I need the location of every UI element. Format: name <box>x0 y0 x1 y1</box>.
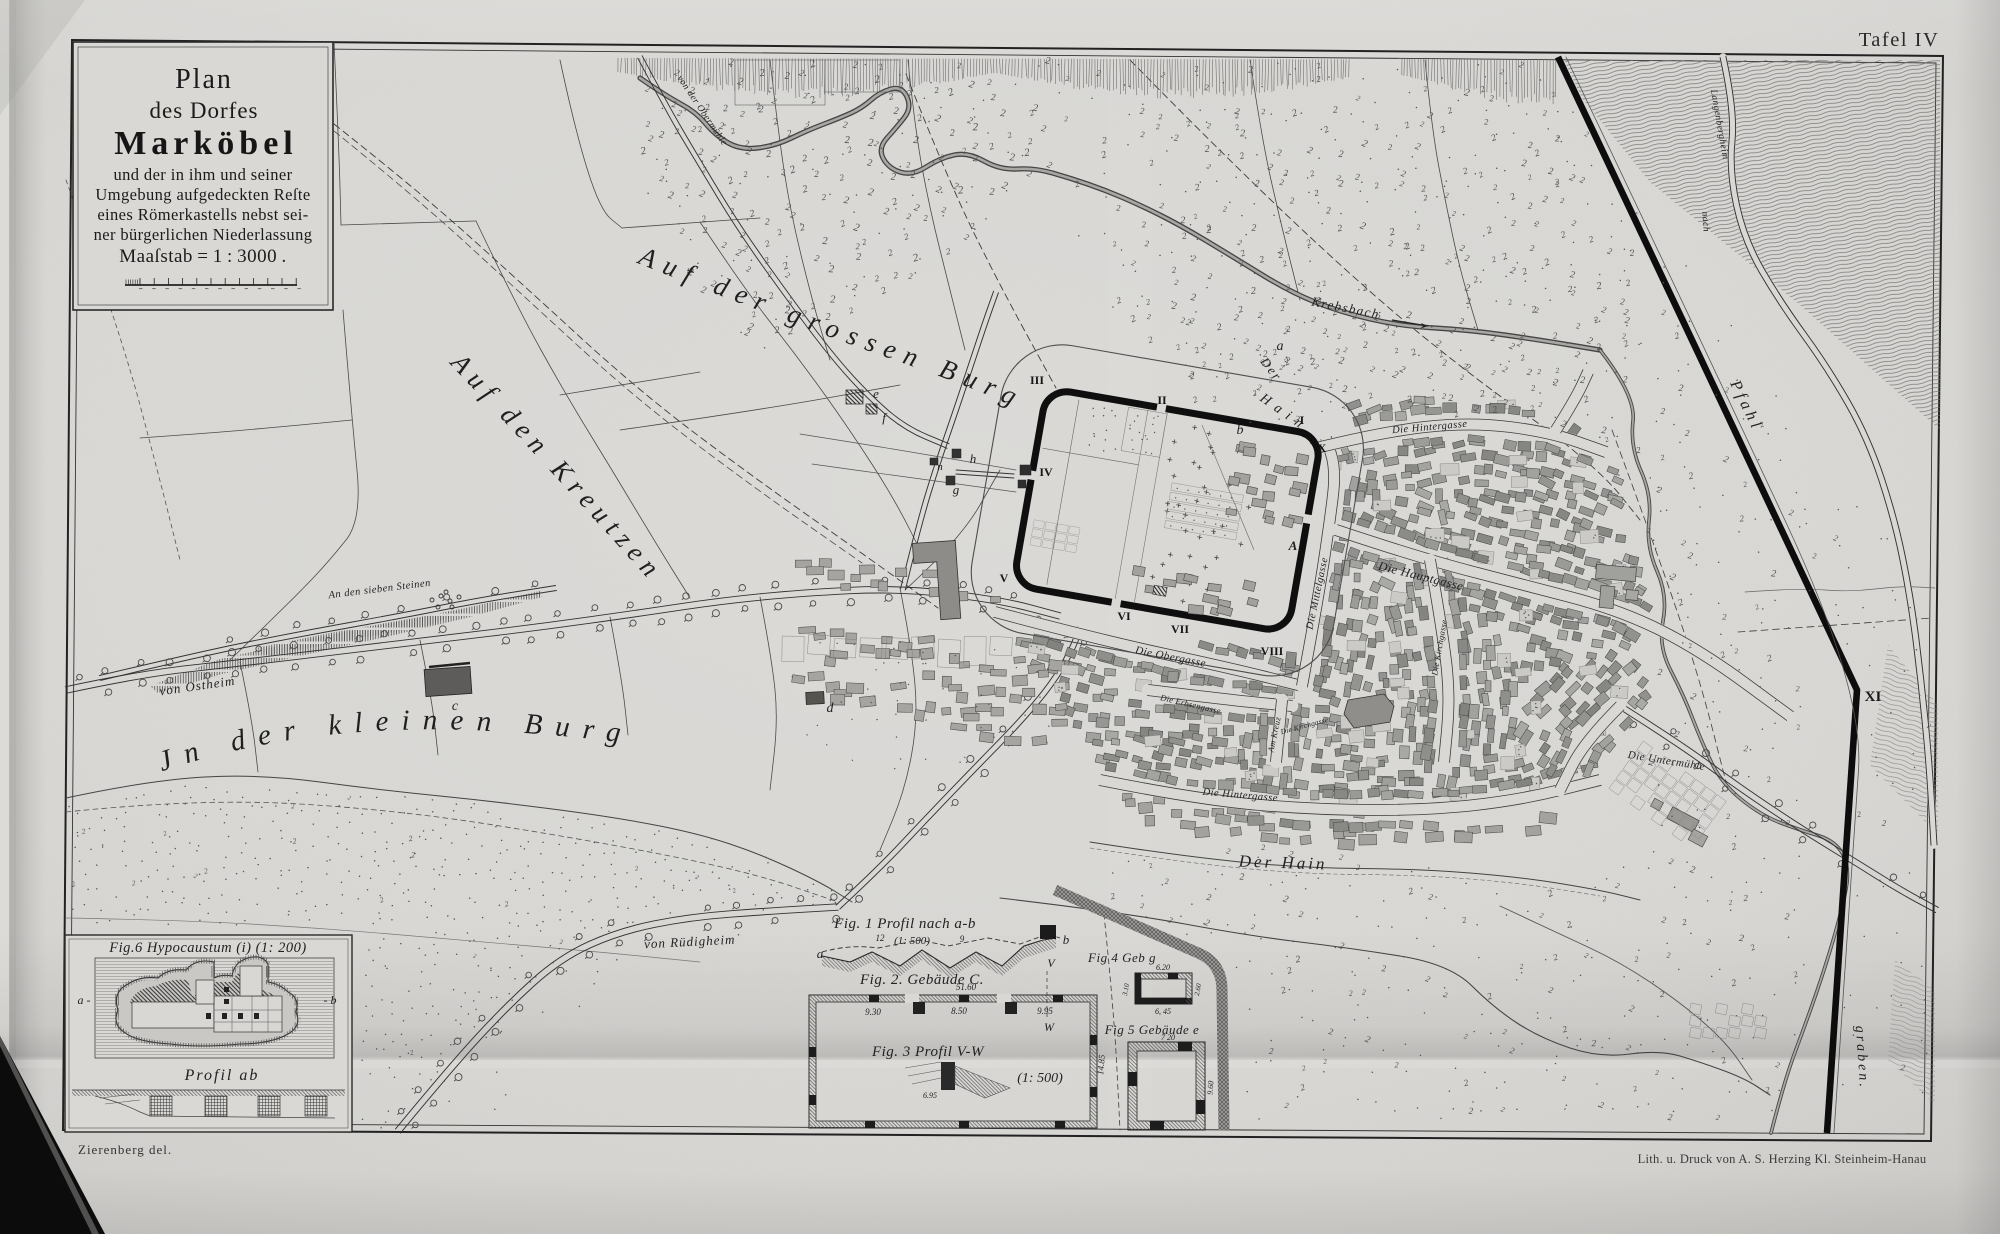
svg-text:2: 2 <box>1726 812 1730 821</box>
svg-text:2: 2 <box>1489 93 1494 103</box>
svg-text:2: 2 <box>1531 384 1536 393</box>
svg-text:2: 2 <box>856 252 861 263</box>
svg-text:2: 2 <box>1338 178 1344 189</box>
svg-text:2: 2 <box>685 181 689 190</box>
svg-text:2: 2 <box>1537 367 1541 376</box>
svg-text:6.95: 6.95 <box>923 1091 937 1100</box>
svg-text:2: 2 <box>803 91 808 100</box>
svg-text:2: 2 <box>1342 384 1348 395</box>
svg-text:2: 2 <box>1251 223 1256 234</box>
svg-text:2: 2 <box>1248 64 1254 75</box>
svg-text:2: 2 <box>1504 398 1508 407</box>
svg-text:Tafel IV: Tafel IV <box>1859 29 1940 51</box>
svg-text:Profil ab: Profil ab <box>184 1067 260 1084</box>
svg-text:Fig 4 Geb g: Fig 4 Geb g <box>1087 950 1156 965</box>
svg-text:2: 2 <box>1239 872 1245 883</box>
svg-text:b: b <box>1237 423 1244 438</box>
svg-text:n: n <box>937 461 943 473</box>
svg-text:2: 2 <box>1326 206 1331 216</box>
svg-text:6, 45: 6, 45 <box>1155 1007 1171 1016</box>
svg-text:12: 12 <box>876 933 886 943</box>
svg-text:2: 2 <box>957 61 961 70</box>
svg-text:2: 2 <box>723 103 729 114</box>
svg-text:9.95: 9.95 <box>1037 1006 1053 1016</box>
svg-text:2: 2 <box>1333 104 1339 115</box>
svg-text:2: 2 <box>1261 843 1265 852</box>
svg-text:W: W <box>1044 1020 1055 1034</box>
svg-text:2: 2 <box>989 187 994 198</box>
svg-text:2: 2 <box>1623 374 1628 385</box>
svg-text:2: 2 <box>703 225 708 235</box>
svg-text:und der in ihm und seiner: und der in ihm und seiner <box>113 165 292 184</box>
svg-text:2: 2 <box>822 235 828 247</box>
svg-text:2: 2 <box>1543 108 1547 117</box>
svg-text:Fig 5 Gebäude e: Fig 5 Gebäude e <box>1104 1022 1200 1037</box>
svg-text:XI: XI <box>1865 689 1882 705</box>
svg-text:nach: nach <box>1699 211 1711 232</box>
svg-text:2: 2 <box>906 160 910 169</box>
svg-text:VIII: VIII <box>1261 644 1284 658</box>
svg-text:g: g <box>953 482 960 497</box>
svg-text:2: 2 <box>814 170 819 180</box>
svg-text:Plan: Plan <box>175 64 233 95</box>
svg-text:2: 2 <box>1180 215 1185 226</box>
svg-text:2: 2 <box>972 121 978 133</box>
svg-text:a: a <box>1277 339 1284 354</box>
svg-text:2: 2 <box>1466 296 1471 306</box>
svg-text:9.30: 9.30 <box>865 1007 881 1017</box>
svg-text:7 20: 7 20 <box>1161 1033 1175 1042</box>
svg-text:2: 2 <box>1493 183 1498 192</box>
svg-text:e: e <box>873 386 879 401</box>
svg-text:2: 2 <box>1362 988 1366 997</box>
svg-text:II: II <box>1157 393 1167 407</box>
svg-text:2: 2 <box>1261 107 1265 116</box>
svg-text:2: 2 <box>1323 327 1328 336</box>
svg-text:Fig.6 Hypocaustum (i) (1: 200): Fig.6 Hypocaustum (i) (1: 200) <box>108 940 306 956</box>
svg-text:2: 2 <box>1140 130 1145 139</box>
svg-text:des Dorfes: des Dorfes <box>150 98 259 123</box>
svg-text:IV: IV <box>1039 465 1053 479</box>
svg-text:2: 2 <box>784 71 790 82</box>
svg-text:ner bürgerlichen Niederlassung: ner bürgerlichen Niederlassung <box>94 225 313 244</box>
svg-text:2: 2 <box>767 270 772 279</box>
svg-text:2: 2 <box>972 153 978 164</box>
svg-text:VII: VII <box>1171 622 1189 636</box>
svg-text:Der Hain: Der Hain <box>1238 851 1328 873</box>
svg-text:2: 2 <box>1442 392 1446 401</box>
svg-text:h: h <box>970 451 977 466</box>
svg-text:eines Römerkastells nebst sei-: eines Römerkastells nebst sei- <box>97 205 308 224</box>
svg-text:2: 2 <box>1204 144 1210 155</box>
svg-text:2: 2 <box>1165 877 1169 886</box>
svg-text:V: V <box>1000 571 1009 585</box>
svg-text:VI: VI <box>1117 609 1131 623</box>
svg-text:6.20: 6.20 <box>1156 963 1170 972</box>
svg-text:2: 2 <box>765 218 770 228</box>
svg-text:2: 2 <box>1223 204 1228 213</box>
svg-text:2: 2 <box>910 170 916 181</box>
svg-text:2: 2 <box>1349 989 1353 998</box>
svg-text:2: 2 <box>1158 112 1162 121</box>
svg-text:2: 2 <box>1722 612 1727 622</box>
svg-text:9.60: 9.60 <box>1205 1080 1215 1095</box>
svg-text:X: X <box>1318 441 1327 455</box>
svg-text:2: 2 <box>1771 568 1777 579</box>
svg-text:2: 2 <box>1468 1106 1473 1116</box>
svg-text:Maaſstab = 1 : 3000 .: Maaſstab = 1 : 3000 . <box>119 246 286 267</box>
svg-text:Lith. u. Druck von A. S. Herzi: Lith. u. Druck von A. S. Herzing Kl. Ste… <box>1638 1152 1927 1166</box>
svg-text:Fig. 3 Profil V-W: Fig. 3 Profil V-W <box>871 1044 985 1060</box>
svg-text:8.50: 8.50 <box>951 1006 967 1016</box>
svg-text:51.60: 51.60 <box>956 982 977 992</box>
svg-text:14.85: 14.85 <box>1095 1054 1107 1076</box>
svg-text:Fig. 1 Profil nach a-b: Fig. 1 Profil nach a-b <box>833 916 976 932</box>
svg-text:2: 2 <box>1388 143 1393 152</box>
svg-text:2: 2 <box>1240 128 1245 139</box>
svg-text:2: 2 <box>990 92 996 103</box>
svg-text:2: 2 <box>1254 178 1260 189</box>
svg-text:b: b <box>1063 932 1070 947</box>
svg-text:2: 2 <box>950 128 955 139</box>
svg-text:d: d <box>827 701 835 716</box>
svg-text:2: 2 <box>1591 1039 1596 1049</box>
svg-text:2: 2 <box>1448 393 1453 404</box>
svg-text:2: 2 <box>1796 684 1800 693</box>
svg-text:- b: - b <box>324 993 337 1007</box>
svg-text:2: 2 <box>1492 390 1497 399</box>
svg-text:Marköbel: Marköbel <box>114 125 298 162</box>
svg-text:2: 2 <box>1555 134 1561 144</box>
svg-text:2: 2 <box>1442 358 1447 368</box>
svg-text:2: 2 <box>1394 1060 1398 1069</box>
svg-text:III: III <box>1030 373 1044 387</box>
svg-text:2: 2 <box>674 126 679 136</box>
svg-text:2: 2 <box>1156 122 1160 131</box>
svg-text:2: 2 <box>1484 117 1489 127</box>
svg-text:2: 2 <box>1278 250 1283 260</box>
svg-text:2: 2 <box>758 104 763 115</box>
svg-text:Zierenberg del.: Zierenberg del. <box>78 1142 172 1157</box>
svg-text:A: A <box>1288 538 1298 553</box>
svg-text:2: 2 <box>1416 222 1420 231</box>
svg-text:Umgebung aufgedeckten Reſte: Umgebung aufgedeckten Reſte <box>95 185 310 204</box>
svg-text:2: 2 <box>1363 341 1368 351</box>
svg-text:2: 2 <box>1414 267 1420 278</box>
svg-text:a -: a - <box>78 993 91 1007</box>
svg-text:(1: 500): (1: 500) <box>1017 1071 1063 1086</box>
svg-text:2: 2 <box>830 294 836 305</box>
svg-text:2: 2 <box>411 850 416 859</box>
